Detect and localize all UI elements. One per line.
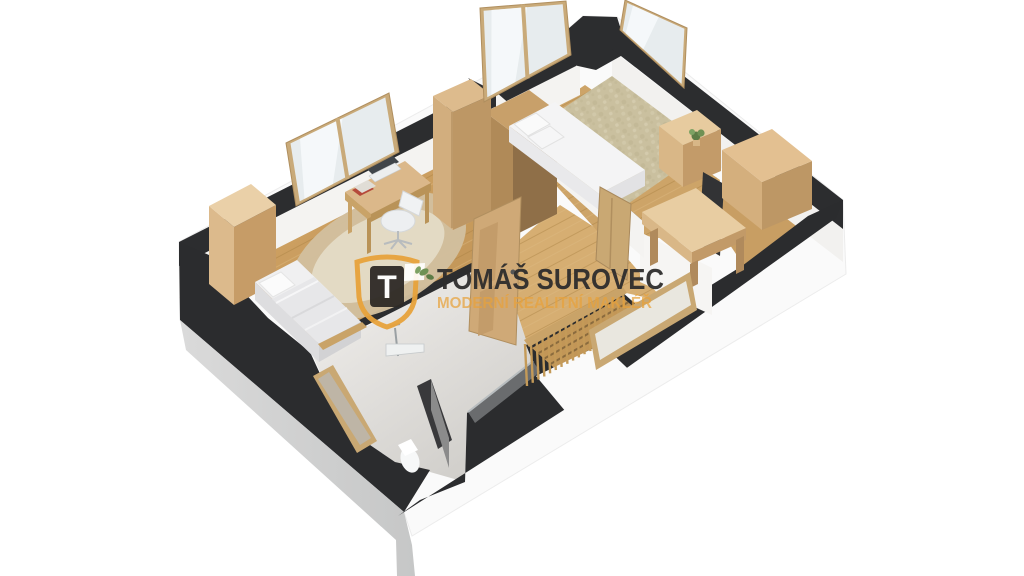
svg-text:TOMÁŠ SUROVEC: TOMÁŠ SUROVEC [437, 262, 664, 296]
svg-text:T: T [377, 269, 397, 305]
svg-text:MODERNÍ REALITNÍ MAKLÉŘ: MODERNÍ REALITNÍ MAKLÉŘ [437, 293, 652, 312]
